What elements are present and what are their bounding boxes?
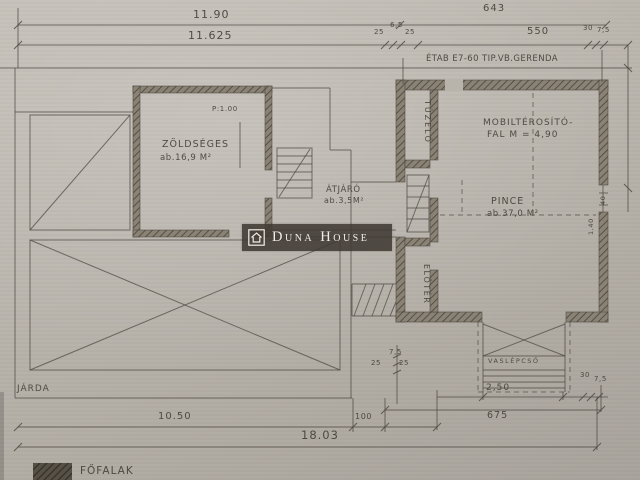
duna-house-watermark: Duna House (242, 224, 392, 251)
dim-top-total: 11.90 (193, 9, 230, 20)
outside-jarda-label: JÁRDA (17, 385, 50, 394)
floorplan-scan: 11.90 11.625 643 25 6,5 25 550 30 7,5 ÉT… (0, 0, 640, 480)
partition-label-line1: MOBILTÉROSÍTÓ- (483, 119, 573, 128)
room-pince-name: PINCE (491, 197, 524, 207)
room-tuzelo-name: TÜZELŐ (423, 100, 431, 144)
dim-side-40: 40 (600, 196, 607, 205)
dim-mid-25a: 25 (371, 360, 381, 367)
dim-bottom-right: 675 (487, 411, 508, 421)
room-atjaro-name: ÁTJÁRÓ (326, 186, 361, 195)
partition-label-line2: FAL M = 4,90 (487, 131, 558, 140)
room-eloter-name: ELŐTÉR (422, 264, 430, 304)
dim-mid-75: 7,5 (389, 349, 402, 356)
dim-top-30: 30 (583, 25, 593, 32)
dim-top-right-total: 643 (483, 4, 505, 14)
room-pince-area: ab.37,0 M² (487, 210, 539, 219)
dim-top-25b: 25 (405, 29, 415, 36)
duna-house-watermark-text: Duna House (272, 229, 369, 246)
room-atjaro-area: ab.3,5M² (324, 197, 364, 205)
stair-vaslepcso-label: VASLÉPCSŐ (488, 358, 540, 365)
beam-note: ÉTAB E7-60 TIP.VB.GERENDA (426, 55, 558, 64)
dim-bottom-30: 30 (580, 372, 590, 379)
dim-top-right-inner: 550 (527, 27, 549, 37)
dim-mid-25b: 25 (399, 360, 409, 367)
legend-walls-label: FŐFALAK (80, 466, 134, 477)
room-zoldseges-area: ab.16,9 M² (160, 154, 212, 163)
dim-top-25a: 25 (374, 29, 384, 36)
duna-house-logo-icon (248, 229, 265, 246)
dim-top-65: 6,5 (390, 22, 403, 29)
dim-bottom-total: 18.03 (301, 430, 339, 442)
dim-bottom-75: 7,5 (594, 376, 607, 383)
dim-side-140: 1,40 (588, 218, 595, 235)
dim-bottom-step: 100 (355, 413, 372, 421)
legend-wall-swatch (33, 463, 72, 480)
room-zoldseges-name: ZÖLDSÉGES (162, 140, 229, 150)
pillar-label: P:1.00 (212, 106, 238, 113)
dim-top-inner: 11.625 (188, 30, 233, 41)
dim-top-75: 7,5 (597, 27, 610, 34)
dim-bottom-left: 10.50 (158, 412, 192, 422)
dim-bottom-stair: 2,50 (486, 384, 510, 393)
